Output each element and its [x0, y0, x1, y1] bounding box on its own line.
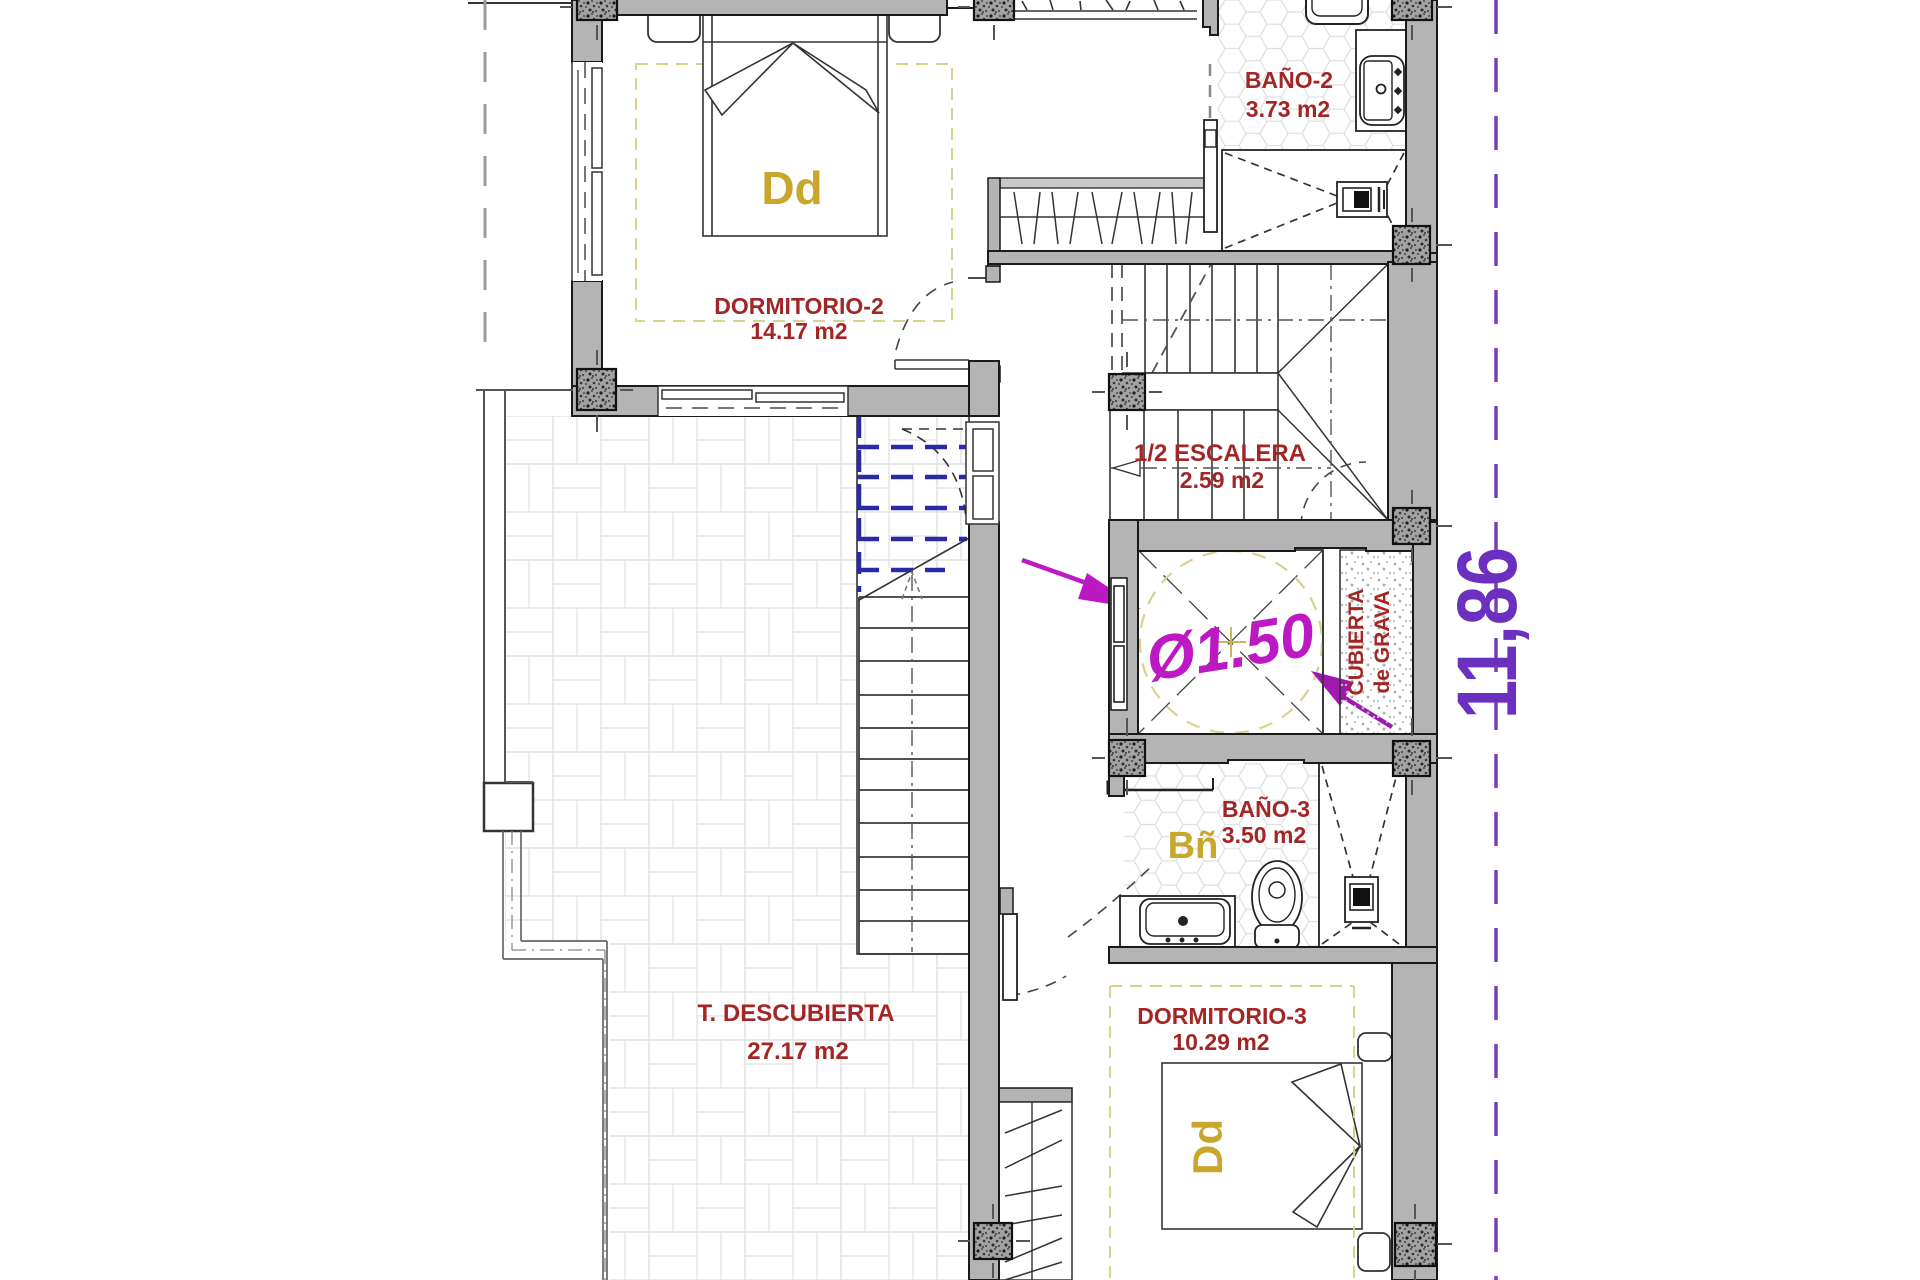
- svg-text:27.17 m2: 27.17 m2: [747, 1038, 848, 1065]
- svg-text:DORMITORIO-3: DORMITORIO-3: [1137, 1003, 1307, 1029]
- svg-text:3.50 m2: 3.50 m2: [1222, 822, 1306, 848]
- svg-text:BAÑO-2: BAÑO-2: [1245, 66, 1333, 93]
- svg-text:Dd: Dd: [1184, 1119, 1231, 1175]
- svg-text:Dd: Dd: [761, 162, 822, 214]
- svg-text:DORMITORIO-2: DORMITORIO-2: [714, 293, 884, 319]
- svg-text:de GRAVA: de GRAVA: [1371, 590, 1394, 693]
- svg-text:14.17 m2: 14.17 m2: [750, 318, 847, 344]
- svg-text:10.29 m2: 10.29 m2: [1172, 1029, 1269, 1055]
- svg-text:1/2 ESCALERA: 1/2 ESCALERA: [1134, 440, 1306, 467]
- svg-text:BAÑO-3: BAÑO-3: [1222, 795, 1310, 822]
- svg-text:2.59 m2: 2.59 m2: [1180, 467, 1264, 493]
- svg-text:Bñ: Bñ: [1168, 825, 1219, 867]
- svg-text:CUBIERTA: CUBIERTA: [1345, 589, 1368, 696]
- svg-text:11,86: 11,86: [1440, 547, 1534, 719]
- svg-text:T. DESCUBIERTA: T. DESCUBIERTA: [698, 1000, 895, 1027]
- svg-text:3.73 m2: 3.73 m2: [1246, 96, 1330, 122]
